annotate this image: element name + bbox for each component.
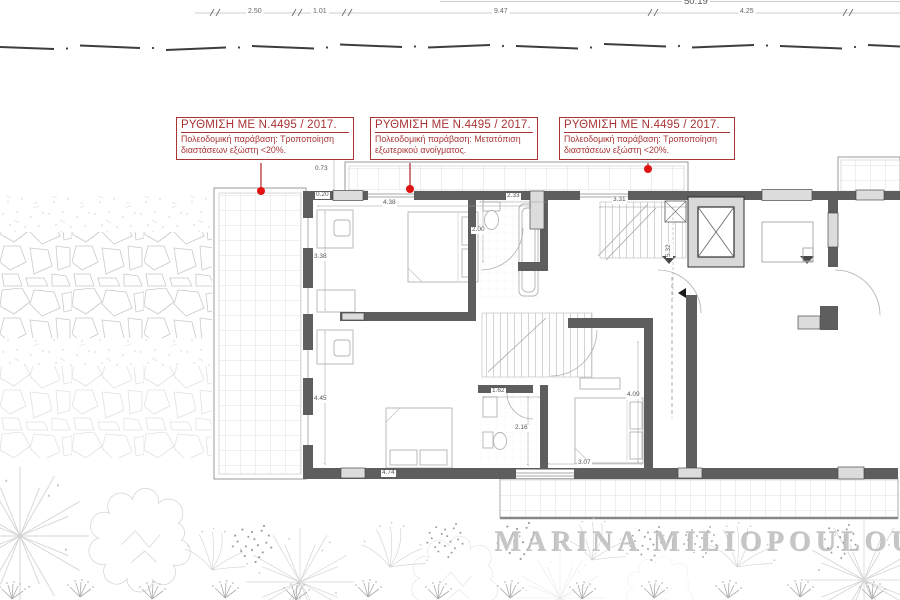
- toilet-1: [485, 211, 499, 230]
- dim-label: 2.00: [471, 227, 486, 234]
- dim-label-top-4: 4.25: [738, 8, 756, 15]
- floor-plan-drawing: [0, 0, 900, 600]
- garden-paving: [0, 194, 212, 458]
- chair-1: [334, 220, 350, 236]
- site-boundary-line: [0, 44, 900, 50]
- leader-dot-1: [257, 187, 265, 195]
- toilet-tank: [483, 202, 500, 211]
- watermark: MARINA MILIOPOULOU: [495, 527, 897, 559]
- annotation-box-3: ΡΥΘΜΙΣΗ ΜΕ Ν.4495 / 2017. Πολεοδομική πα…: [559, 117, 735, 160]
- bottom-balcony: [500, 479, 898, 518]
- annotation-1-title: ΡΥΘΜΙΣΗ ΜΕ Ν.4495 / 2017.: [181, 119, 349, 133]
- bench-3: [580, 378, 620, 389]
- chair-2: [334, 340, 350, 356]
- dim-label: 4.09: [626, 392, 641, 399]
- annotation-2-title: ΡΥΘΜΙΣΗ ΜΕ Ν.4495 / 2017.: [375, 119, 533, 133]
- top-balcony: [345, 162, 688, 193]
- dim-label: 5.32: [666, 243, 673, 258]
- dim-label: 0.73: [314, 166, 329, 173]
- dim-label: 3.31: [612, 197, 627, 204]
- annotation-box-2: ΡΥΘΜΙΣΗ ΜΕ Ν.4495 / 2017. Πολεοδομική πα…: [370, 117, 538, 160]
- dim-label: 4.38: [382, 200, 397, 207]
- dresser-1: [317, 290, 355, 312]
- sink-2: [483, 397, 497, 417]
- annotation-3-body: Πολεοδομική παράβαση: Τροποποίηση διαστά…: [564, 134, 730, 156]
- overall-dimension-label: 50.19: [682, 0, 710, 7]
- annotation-box-1: ΡΥΘΜΙΣΗ ΜΕ Ν.4495 / 2017. Πολεοδομική πα…: [176, 117, 354, 160]
- annotation-2-body: Πολεοδομική παράβαση: Μετατόπιση εξωτερι…: [375, 134, 533, 156]
- dim-label-top-1: 2.50: [246, 8, 264, 15]
- dim-label: 3.38: [313, 254, 328, 261]
- dim-label: 0.20: [315, 192, 330, 199]
- annotation-1-body: Πολεοδομική παράβαση: Τροποποίηση διαστά…: [181, 134, 349, 156]
- dim-label: 2.33: [506, 193, 521, 200]
- dim-label: 1.62: [491, 388, 506, 395]
- dim-label: 4.45: [313, 396, 328, 403]
- annotation-3-title: ΡΥΘΜΙΣΗ ΜΕ Ν.4495 / 2017.: [564, 119, 730, 133]
- dim-label-top-2: 1.01: [311, 8, 329, 15]
- dim-label-top-3: 9.47: [492, 8, 510, 15]
- dim-label: 4.74: [381, 470, 396, 477]
- top-right-balcony: [838, 157, 900, 193]
- circulation-line: [672, 277, 686, 418]
- floor-plan-sheet: ΡΥΘΜΙΣΗ ΜΕ Ν.4495 / 2017. Πολεοδομική πα…: [0, 0, 900, 600]
- leader-dot-2: [406, 185, 414, 193]
- left-balcony: [214, 188, 306, 479]
- dim-label: 2.16: [514, 425, 529, 432]
- dim-label: 3.07: [577, 460, 592, 467]
- dimension-ticks: [210, 9, 853, 16]
- leader-dot-3: [644, 165, 652, 173]
- toilet-2: [494, 433, 507, 450]
